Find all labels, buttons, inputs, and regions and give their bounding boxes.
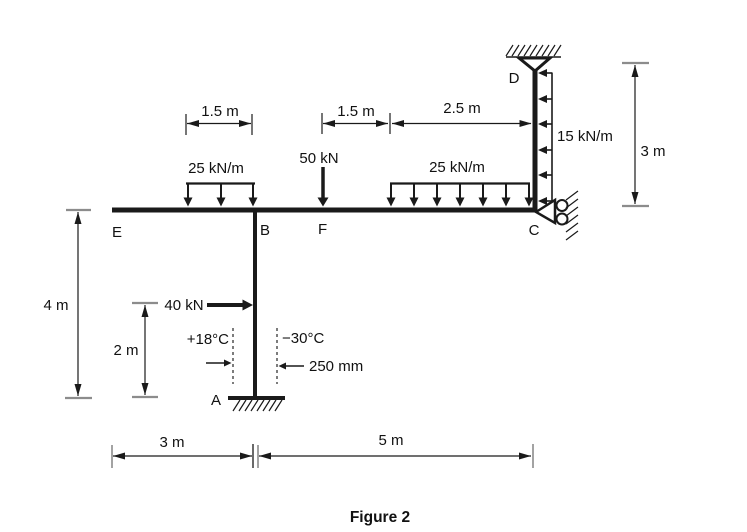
dim-label: 1.5 m (337, 103, 375, 120)
dim-label: 5 m (378, 432, 403, 449)
dim-label: 3 m (640, 143, 665, 160)
structural-diagram: 25 kN/m 25 kN/m 15 kN/m (0, 0, 747, 532)
left-arrow-icon (392, 120, 404, 127)
point-load-40-label: 40 kN (164, 297, 203, 314)
down-arrow-icon (410, 198, 419, 207)
down-arrow-icon (433, 198, 442, 207)
dim-2m: 2 m (113, 303, 158, 397)
down-arrow-icon (387, 198, 396, 207)
right-arrow-icon (520, 120, 532, 127)
down-arrow-icon (249, 198, 258, 207)
left-arrow-icon (538, 69, 547, 77)
down-arrow-icon (318, 198, 329, 207)
dim-label: 3 m (159, 434, 184, 451)
left-arrow-icon (538, 146, 547, 154)
node-label-e: E (112, 224, 122, 241)
left-arrow-icon (187, 120, 199, 127)
roller-circle-top (557, 200, 568, 211)
point-load-50: 50 kN (299, 150, 338, 207)
down-arrow-icon (75, 384, 82, 396)
temperature-annotations: +18°C −30°C 250 mm (187, 328, 363, 384)
dim-top-left-1p5: 1.5 m (186, 103, 252, 135)
right-arrow-icon (239, 120, 251, 127)
dim-label: 2 m (113, 342, 138, 359)
left-arrow-icon (538, 197, 547, 205)
down-arrow-icon (479, 198, 488, 207)
temp-right-label: −30°C (282, 330, 324, 347)
dim-top-right-2p5: 2.5 m (392, 100, 532, 127)
udl-left-25: 25 kN/m (184, 160, 258, 207)
dim-bottom-5m: 5 m (258, 432, 533, 468)
right-arrow-icon (376, 120, 388, 127)
point-load-40: 40 kN (164, 297, 253, 314)
dim-left-4m: 4 m (43, 210, 92, 398)
figure-caption: Figure 2 (350, 509, 410, 526)
right-arrow-icon (519, 453, 531, 460)
down-arrow-icon (525, 198, 534, 207)
point-load-50-label: 50 kN (299, 150, 338, 167)
figure-canvas: 25 kN/m 25 kN/m 15 kN/m (0, 0, 747, 532)
down-arrow-icon (502, 198, 511, 207)
down-arrow-icon (142, 383, 149, 395)
ground-hatch (233, 400, 282, 411)
down-arrow-icon (184, 198, 193, 207)
udl-right-25: 25 kN/m (387, 159, 534, 207)
right-arrow-icon (240, 453, 252, 460)
down-arrow-icon (456, 198, 465, 207)
udl-column-label: 15 kN/m (557, 128, 613, 145)
right-arrow-icon (224, 360, 232, 367)
pin-support-d (506, 45, 561, 71)
fixed-support-a (228, 398, 285, 411)
dim-label: 1.5 m (201, 103, 239, 120)
left-arrow-icon (113, 453, 125, 460)
down-arrow-icon (217, 198, 226, 207)
node-label-b: B (260, 222, 270, 239)
node-label-d: D (509, 70, 520, 87)
roller-circle-bottom (557, 214, 568, 225)
dim-label: 4 m (43, 297, 68, 314)
wall-hatch (566, 191, 578, 240)
dim-right-3m: 3 m (622, 63, 666, 206)
pin-triangle (519, 58, 550, 71)
dim-bottom-3m: 3 m (112, 434, 253, 468)
left-arrow-icon (538, 95, 547, 103)
node-label-c: C (529, 222, 540, 239)
up-arrow-icon (142, 305, 149, 317)
left-arrow-icon (279, 363, 287, 370)
node-label-f: F (318, 221, 327, 238)
left-arrow-icon (538, 120, 547, 128)
down-arrow-icon (632, 192, 639, 204)
temp-left-label: +18°C (187, 331, 229, 348)
roller-support-c (536, 191, 578, 240)
left-arrow-icon (323, 120, 335, 127)
left-arrow-icon (259, 453, 271, 460)
dim-top-mid-1p5: 1.5 m (322, 103, 390, 134)
member-width-label: 250 mm (309, 358, 363, 375)
up-arrow-icon (632, 65, 639, 77)
udl-right-label: 25 kN/m (429, 159, 485, 176)
udl-left-label: 25 kN/m (188, 160, 244, 177)
udl-column-15: 15 kN/m (538, 69, 613, 205)
right-arrow-icon (243, 300, 254, 311)
ceiling-hatch (506, 45, 561, 56)
left-arrow-icon (538, 171, 547, 179)
node-label-a: A (211, 392, 221, 409)
dim-label: 2.5 m (443, 100, 481, 117)
up-arrow-icon (75, 212, 82, 224)
